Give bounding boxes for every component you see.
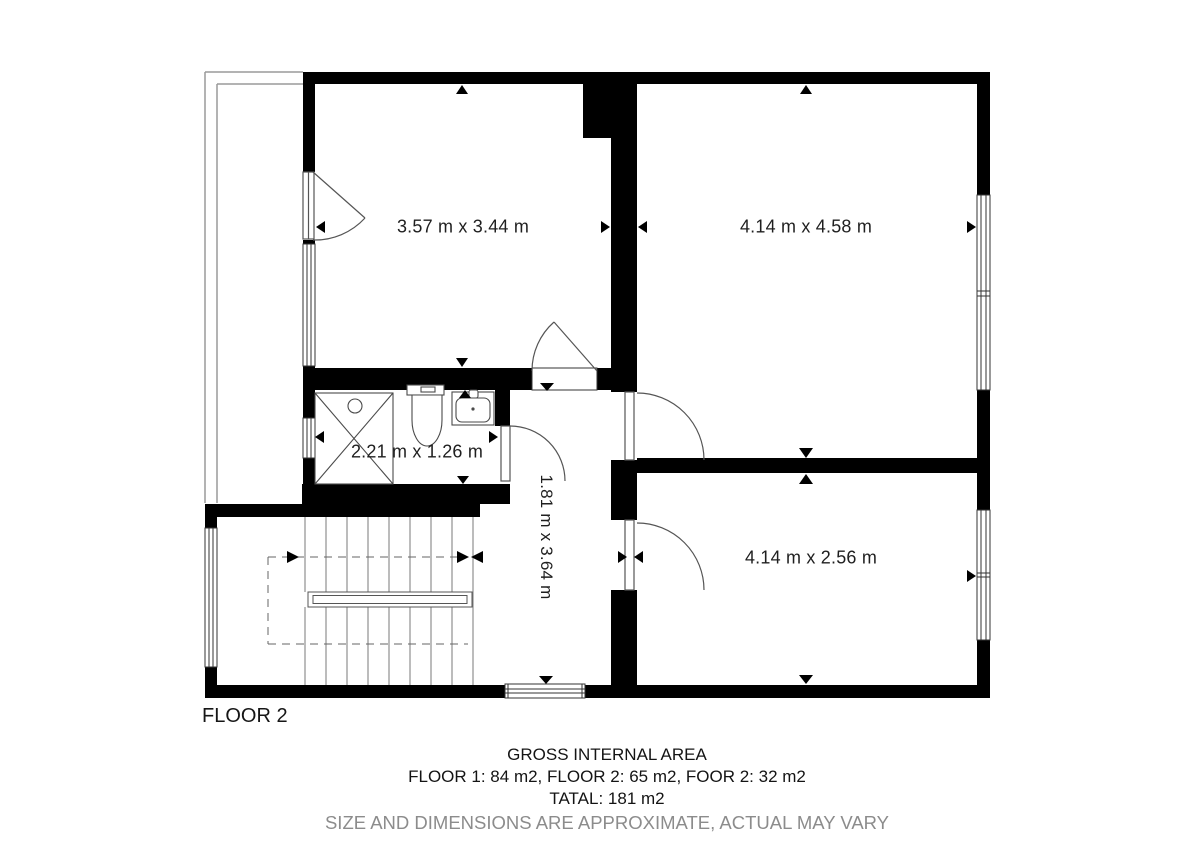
window-room3-right [977, 510, 990, 640]
window-bathroom-left [303, 418, 315, 458]
arrow-down-room2 [799, 448, 813, 458]
arrow-left-room1 [316, 221, 325, 233]
door-room2 [625, 392, 704, 460]
arrow-right-bathroom [489, 431, 498, 443]
stairs [268, 517, 473, 685]
wall-center-lower [611, 590, 637, 686]
arrow-right-room1 [601, 221, 610, 233]
arrow-right-room2 [967, 221, 976, 233]
arrow-up-room2 [800, 85, 812, 94]
door-bathroom [501, 426, 565, 481]
balcony-outline [205, 72, 303, 503]
wall-bathroom-left-lower [303, 458, 315, 484]
arrow-up-room1 [456, 85, 468, 94]
window-stairs-left [205, 528, 217, 667]
wall-right-rooms-divider [637, 458, 977, 473]
door-sill-hallway-top [532, 368, 597, 390]
wall-center-upper [611, 137, 637, 392]
floor-areas-text: FLOOR 1: 84 m2, FLOOR 2: 65 m2, FOOR 2: … [210, 766, 1004, 788]
footer: GROSS INTERNAL AREA FLOOR 1: 84 m2, FLOO… [210, 744, 1004, 834]
gross-internal-area-title: GROSS INTERNAL AREA [210, 744, 1004, 766]
windows [205, 195, 990, 698]
bathroom-dimensions: 2.21 m x 1.26 m [351, 442, 483, 463]
window-hallway-bottom [505, 684, 585, 698]
bathroom-fixtures [315, 385, 494, 484]
window-room1-left [303, 244, 315, 366]
room-bottom-right-dimensions: 4.14 m x 2.56 m [745, 548, 877, 569]
floor-plan-drawing [0, 0, 1200, 849]
wall-right-upper [977, 84, 990, 195]
total-area-text: TATAL: 181 m2 [210, 788, 1004, 810]
arrow-down-hallway-bottom [539, 676, 553, 684]
arrow-right-room3 [967, 570, 976, 582]
hallway-dimensions: 1.81 m x 3.64 m [536, 475, 556, 600]
wall-left-upper [303, 84, 315, 172]
door-room3 [625, 520, 704, 590]
arrow-down-room3 [799, 675, 813, 684]
arrow-stairs-direction-1 [287, 551, 299, 563]
arrow-left-bathroom [315, 431, 324, 443]
wall-stairs-left-upper [205, 517, 217, 528]
sink [452, 390, 494, 425]
floor-plan-page: 3.57 m x 3.44 m 4.14 m x 4.58 m 2.21 m x… [0, 0, 1200, 849]
toilet [407, 385, 444, 446]
stair-handrail [308, 592, 472, 607]
wall-right-middle [977, 390, 990, 510]
room-top-right-dimensions: 4.14 m x 4.58 m [740, 217, 872, 238]
arrow-stairs-direction-2 [457, 551, 469, 563]
wall-stairs-top [205, 504, 480, 517]
wall-bathroom-left-upper [303, 390, 315, 418]
shower [315, 393, 393, 484]
window-room2-right [977, 195, 990, 390]
wall-top [303, 72, 990, 84]
arrow-left-room3-door [634, 551, 643, 563]
wall-right-lower [977, 640, 990, 686]
wall-bathroom-right [495, 390, 510, 426]
wall-bathroom-bottom [302, 484, 510, 504]
wall-center-block [611, 460, 637, 520]
wall-bottom [205, 685, 990, 698]
door-room1-hallway [532, 322, 597, 371]
door-room1-left [303, 172, 365, 240]
wall-stairs-left-lower [205, 667, 217, 686]
arrow-down-bathroom [457, 476, 469, 484]
room-top-left-dimensions: 3.57 m x 3.44 m [397, 217, 529, 238]
arrow-left-room2 [638, 221, 647, 233]
floor-label: FLOOR 2 [202, 705, 288, 728]
disclaimer-text: SIZE AND DIMENSIONS ARE APPROXIMATE, ACT… [210, 811, 1004, 834]
wall-chimney [583, 83, 637, 138]
arrow-up-room3 [799, 474, 813, 484]
arrow-down-room1 [456, 358, 468, 367]
